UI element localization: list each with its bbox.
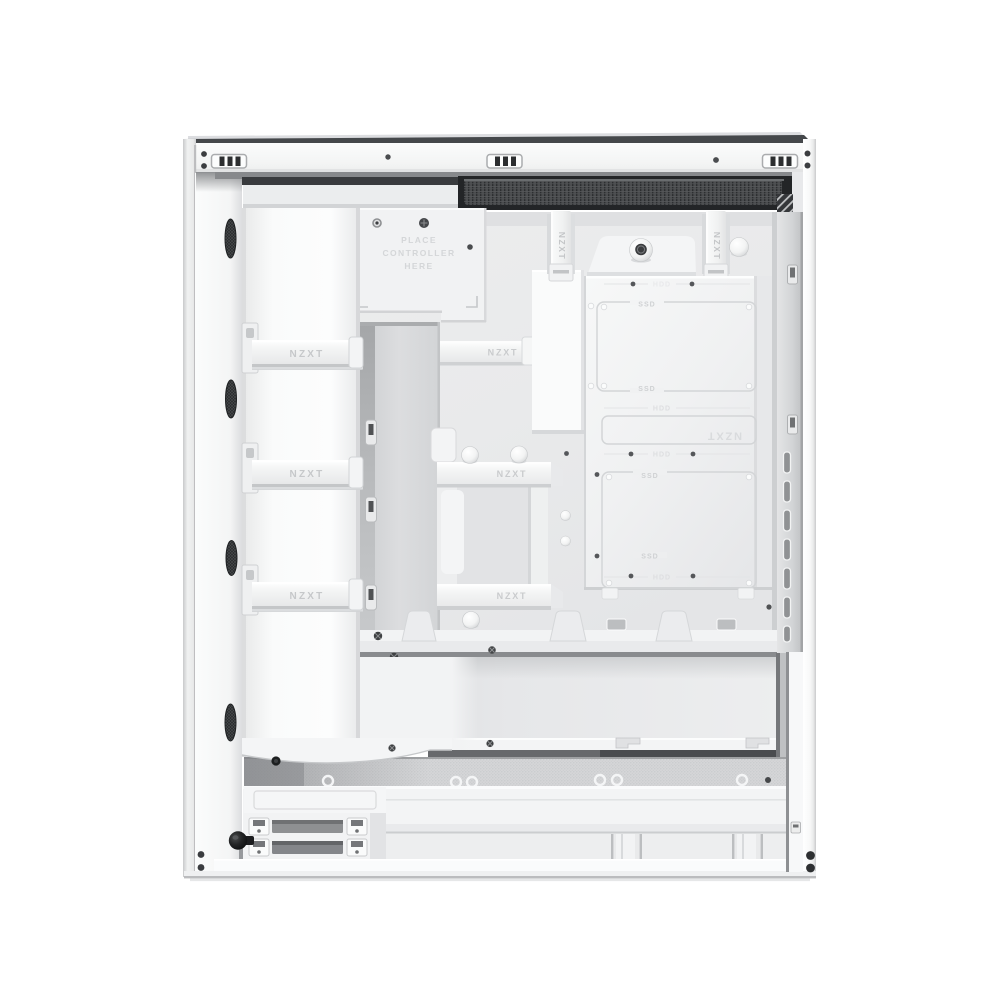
svg-text:NZXT: NZXT <box>497 591 528 601</box>
svg-text:NZXT: NZXT <box>497 469 528 479</box>
svg-text:NZXT: NZXT <box>488 348 519 358</box>
svg-text:SSD: SSD <box>641 473 658 480</box>
svg-text:NZXT: NZXT <box>557 232 567 261</box>
svg-text:HDD: HDD <box>653 575 671 582</box>
svg-text:PLACE: PLACE <box>401 235 437 245</box>
svg-text:NZXT: NZXT <box>712 232 722 261</box>
svg-text:SSD: SSD <box>638 302 655 309</box>
svg-text:SSD: SSD <box>641 554 658 561</box>
svg-text:NZXT: NZXT <box>290 349 325 360</box>
svg-text:HDD: HDD <box>653 282 671 289</box>
svg-text:HDD: HDD <box>653 406 671 413</box>
svg-text:HERE: HERE <box>404 261 433 271</box>
svg-text:NZXT: NZXT <box>706 430 742 442</box>
svg-text:NZXT: NZXT <box>290 591 325 602</box>
svg-text:SSD: SSD <box>638 386 655 393</box>
svg-text:CONTROLLER: CONTROLLER <box>382 248 455 258</box>
svg-text:NZXT: NZXT <box>290 469 325 480</box>
svg-text:HDD: HDD <box>653 452 671 459</box>
